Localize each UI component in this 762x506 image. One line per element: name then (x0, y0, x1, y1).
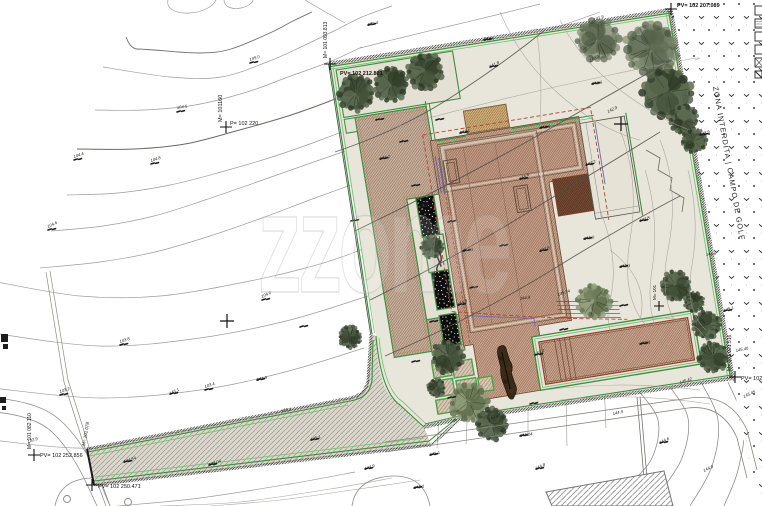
svg-text:144.9: 144.9 (612, 409, 624, 416)
svg-text:M= 101 093.813: M= 101 093.813 (323, 22, 329, 58)
svg-text:PV= 102 252.856: PV= 102 252.856 (40, 453, 83, 459)
svg-text:PV= 102 212.801: PV= 102 212.801 (340, 71, 383, 77)
svg-text:PV= 102 3: PV= 102 3 (741, 376, 762, 382)
svg-text:M= 101160: M= 101160 (218, 95, 224, 122)
svg-text:PV= 102 207.089: PV= 102 207.089 (677, 3, 720, 9)
svg-text:104.5: 104.5 (176, 103, 188, 110)
svg-text:104.8: 104.8 (150, 155, 162, 163)
svg-text:P= 102 220: P= 102 220 (230, 121, 258, 127)
svg-text:M= 101 021.516: M= 101 021.516 (727, 335, 733, 371)
svg-text:103.8: 103.8 (119, 336, 131, 344)
svg-text:103.2: 103.2 (59, 386, 71, 394)
svg-text:105.0: 105.0 (249, 54, 261, 62)
svg-text:zzome: zzome (258, 165, 509, 324)
svg-text:PV= 102 250.471: PV= 102 250.471 (98, 484, 141, 490)
svg-text:139.4: 139.4 (367, 20, 379, 27)
svg-text:104.4: 104.4 (73, 151, 85, 159)
svg-text:104.6: 104.6 (46, 220, 58, 229)
svg-text:145.1: 145.1 (429, 450, 440, 457)
svg-text:144.9: 144.9 (256, 375, 268, 382)
svg-text:144.9: 144.9 (364, 463, 376, 471)
svg-text:M= 101: M= 101 (652, 284, 657, 300)
